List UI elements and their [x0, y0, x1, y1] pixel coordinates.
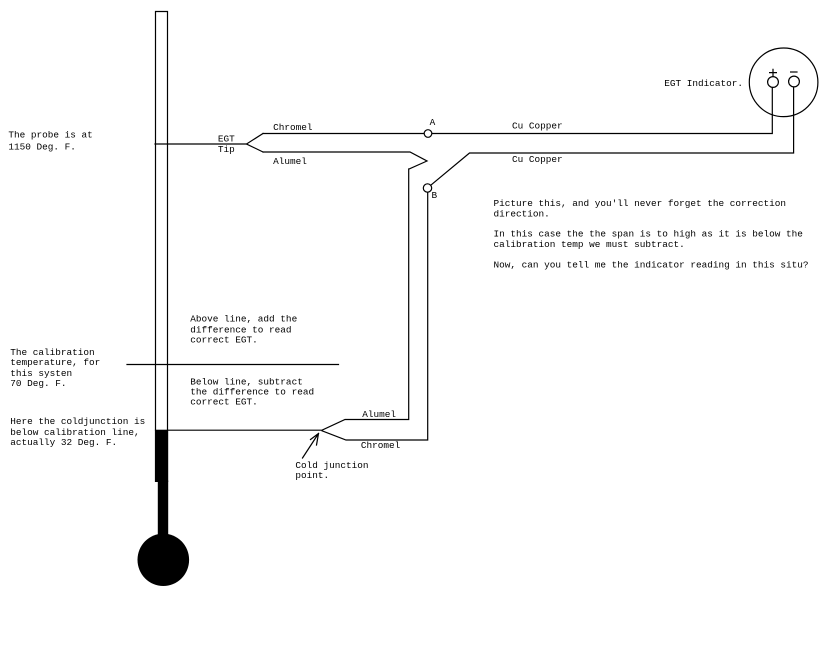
svg-text:B: B: [432, 190, 438, 201]
svg-text:Cu Copper: Cu Copper: [512, 121, 563, 132]
svg-text:Tip: Tip: [218, 144, 235, 155]
svg-text:correct EGT.: correct EGT.: [190, 335, 258, 346]
svg-text:difference to read: difference to read: [190, 324, 291, 335]
svg-text:Chromel: Chromel: [361, 440, 401, 451]
svg-text:In this case the the span is t: In this case the the span is to high as …: [494, 229, 804, 240]
svg-text:Here the coldjunction is: Here the coldjunction is: [10, 416, 145, 427]
svg-text:A: A: [430, 117, 436, 128]
svg-text:Picture this, and you'll never: Picture this, and you'll never forget th…: [494, 198, 787, 209]
svg-text:point.: point.: [295, 470, 329, 481]
svg-text:Now, can you tell me the indic: Now, can you tell me the indicator readi…: [494, 259, 809, 270]
svg-text:Chromel: Chromel: [273, 122, 313, 133]
svg-text:1150 Deg. F.: 1150 Deg. F.: [8, 141, 76, 152]
svg-text:70 Deg. F.: 70 Deg. F.: [10, 378, 66, 389]
svg-text:EGT Indicator.: EGT Indicator.: [664, 78, 743, 89]
svg-text:direction.: direction.: [494, 208, 550, 219]
svg-text:actually 32 Deg. F.: actually 32 Deg. F.: [10, 437, 117, 448]
svg-text:Above line, add the: Above line, add the: [190, 314, 297, 325]
svg-text:Alumel: Alumel: [273, 156, 307, 167]
svg-text:temperature, for: temperature, for: [10, 357, 100, 368]
svg-text:calibration temp we must subtr: calibration temp we must subtract.: [494, 239, 685, 250]
svg-text:The probe is at: The probe is at: [8, 129, 92, 140]
svg-text:Cu Copper: Cu Copper: [512, 154, 563, 165]
svg-text:correct EGT.: correct EGT.: [190, 397, 258, 408]
svg-text:Alumel: Alumel: [362, 409, 396, 420]
